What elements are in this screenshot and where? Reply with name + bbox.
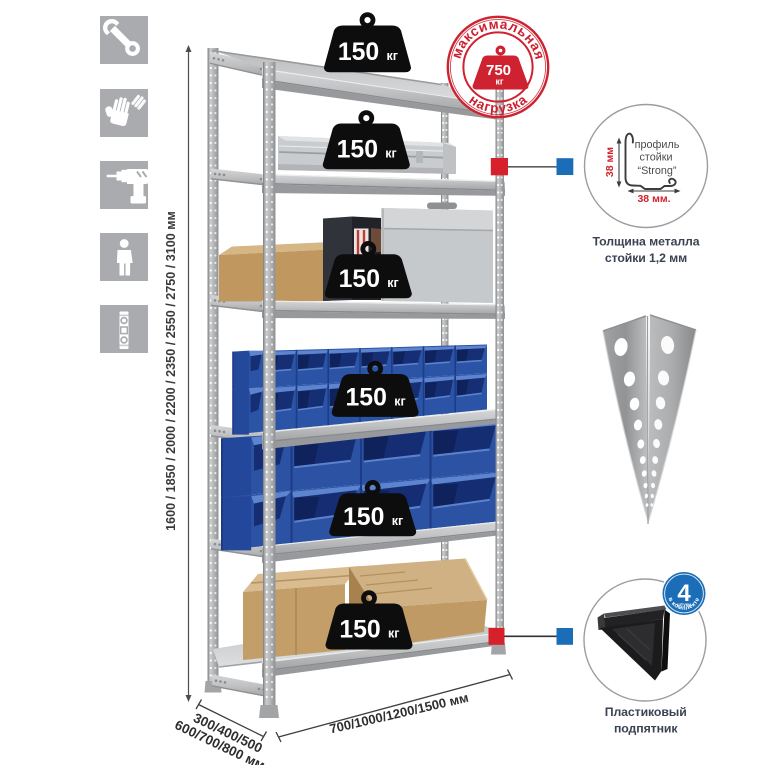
svg-text:150: 150 (339, 617, 380, 644)
svg-text:“Strong”: “Strong” (637, 165, 676, 177)
svg-text:150: 150 (338, 39, 379, 66)
svg-text:Толщина металла: Толщина металла (593, 235, 700, 249)
svg-text:кг: кг (387, 49, 398, 63)
svg-text:кг: кг (387, 276, 398, 290)
svg-text:150: 150 (346, 385, 387, 412)
svg-text:подпятник: подпятник (614, 722, 678, 736)
svg-text:Пластиковый: Пластиковый (605, 705, 687, 719)
svg-text:150: 150 (343, 504, 384, 531)
svg-text:кг: кг (388, 627, 399, 641)
svg-text:150: 150 (339, 266, 380, 293)
svg-text:стойки: стойки (639, 152, 672, 164)
svg-text:кг: кг (495, 77, 503, 87)
svg-text:38 мм: 38 мм (604, 147, 616, 177)
svg-text:38 мм.: 38 мм. (637, 193, 670, 205)
svg-text:кг: кг (392, 514, 403, 528)
svg-text:кг: кг (394, 395, 405, 409)
svg-text:кг: кг (385, 146, 396, 160)
svg-text:1600 / 1850 / 2000 / 2200 / 23: 1600 / 1850 / 2000 / 2200 / 2350 / 2550 … (164, 211, 178, 531)
svg-text:профиль: профиль (635, 139, 680, 151)
svg-text:150: 150 (337, 136, 378, 163)
svg-text:стойки 1,2 мм: стойки 1,2 мм (605, 251, 687, 265)
